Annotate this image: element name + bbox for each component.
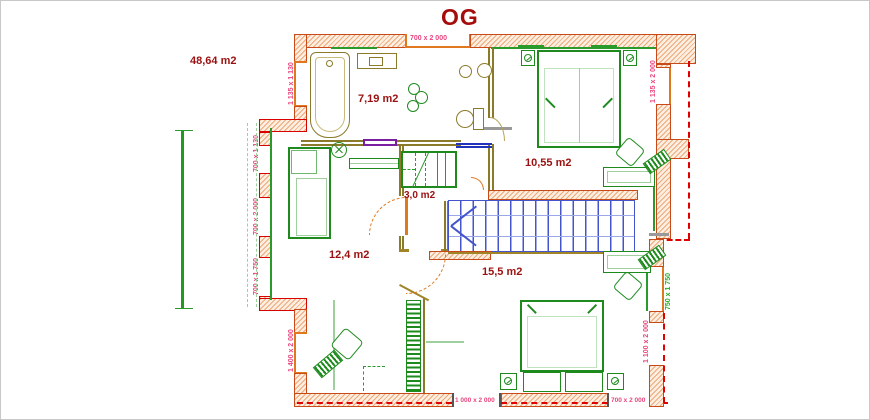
- sink-basin: [369, 57, 383, 66]
- roof-window-mark: [518, 45, 544, 48]
- wall-right-b: [656, 104, 671, 239]
- wall-bath-right: [488, 48, 494, 118]
- dim-top-window: 700 x 2 000: [410, 35, 447, 43]
- wall-bookshelf: [423, 298, 426, 393]
- stair-handrail: [449, 215, 634, 216]
- total-area-label: 48,64 m2: [190, 55, 236, 67]
- dim-bottom-left-door: 1 000 x 2 000: [455, 397, 495, 405]
- roof-dashed-line: [688, 61, 690, 239]
- desk-outline-dashed: [363, 366, 385, 391]
- wall-top-right: [470, 34, 670, 48]
- wall-right-d: [649, 311, 664, 323]
- room-label-closet: 3,0 m2: [404, 190, 435, 201]
- room-label-bathroom: 7,19 m2: [358, 93, 398, 105]
- pillow: [523, 372, 561, 392]
- bathtub-inner: [315, 57, 345, 132]
- dim-left-bottom-window: 1 400 x 2 000: [288, 329, 296, 372]
- lamp-icon: [524, 54, 532, 62]
- dim-right-middle: 750 x 1 750: [665, 273, 673, 310]
- wall-stub: [649, 233, 669, 236]
- roof-dashed-line: [297, 402, 452, 404]
- keyboard: [313, 350, 343, 379]
- bathroom-sink: [357, 53, 397, 69]
- bookshelf: [406, 300, 421, 392]
- wall-left-upper: [294, 34, 307, 62]
- bathtub: [310, 52, 350, 138]
- wall-bottom-mid: [501, 393, 609, 407]
- door-arc-left-room: [369, 197, 407, 235]
- dim-right-top: 1 135 x 2 000: [650, 60, 658, 103]
- double-bed: [537, 50, 621, 148]
- closet-box: [401, 151, 457, 188]
- floor-plan-canvas: OG 48,64 m2 700 x 2 000 1 135 x 1 130 70…: [0, 0, 870, 420]
- plant-icon: [331, 142, 347, 158]
- bathtub-drain-icon: [326, 60, 333, 67]
- nightstand: [521, 50, 535, 66]
- room-label-bedroom-left: 12,4 m2: [329, 249, 369, 261]
- toilet-bowl: [456, 110, 474, 128]
- radiator: [363, 139, 397, 146]
- wall-corner-top-right: [656, 34, 696, 64]
- window-right-middle: [649, 267, 664, 311]
- door-arc-hall: [471, 177, 484, 190]
- shelf: [349, 158, 399, 169]
- wall-right-e: [649, 365, 664, 407]
- plant-icon: [406, 83, 430, 115]
- roof-dashed-line: [501, 402, 608, 404]
- window-right-top: [656, 68, 671, 104]
- roof-window-mark: [591, 45, 617, 48]
- window-right-bottom: [649, 323, 664, 365]
- plant-icon: [611, 377, 619, 385]
- wall-face-line: [270, 128, 272, 300]
- toilet-cistern: [473, 108, 484, 130]
- dim-bottom-right-door: 700 x 2 000: [611, 397, 645, 405]
- door-arc-bath: [490, 117, 505, 141]
- roof-eave-line: [181, 131, 184, 309]
- washbasin-round: [459, 65, 472, 78]
- nightstand: [500, 373, 517, 390]
- door-jamb: [607, 393, 609, 407]
- wall-face-line: [491, 47, 656, 49]
- wall-dormer-step-top: [259, 119, 307, 132]
- double-bed: [520, 300, 604, 372]
- nightstand: [623, 50, 637, 66]
- niche-blue: [456, 143, 492, 148]
- wall-bottom-left: [294, 393, 454, 407]
- staircase: [448, 200, 635, 252]
- stair-handrail: [449, 236, 634, 237]
- room-label-bedroom-top-right: 10,55 m2: [525, 157, 571, 169]
- wall-top-left: [294, 34, 408, 48]
- floor-plan-title: OG: [441, 4, 479, 31]
- roof-dashed-line: [663, 313, 665, 403]
- nightstand: [607, 373, 624, 390]
- dim-right-bottom: 1 100 x 2 000: [643, 320, 651, 363]
- washbasin-round: [477, 63, 492, 78]
- door-arc-bottom-room: [406, 254, 446, 294]
- door-jamb: [452, 393, 454, 407]
- wall-face-line: [331, 47, 377, 49]
- eave-tick: [175, 308, 193, 309]
- roof-overhang: [247, 123, 257, 307]
- eave-tick: [175, 130, 193, 131]
- pillow: [565, 372, 603, 392]
- dim-left-bath-window: 1 135 x 1 130: [288, 62, 296, 105]
- lamp-icon: [626, 54, 634, 62]
- wall-stairwell-top: [488, 190, 638, 200]
- single-bed: [288, 147, 331, 239]
- wall-stub: [399, 249, 409, 252]
- room-label-bedroom-bottom: 15,5 m2: [482, 266, 522, 278]
- window-jamb: [405, 34, 407, 48]
- chair: [613, 271, 644, 302]
- shelf-line: [426, 341, 464, 343]
- plant-icon: [504, 377, 512, 385]
